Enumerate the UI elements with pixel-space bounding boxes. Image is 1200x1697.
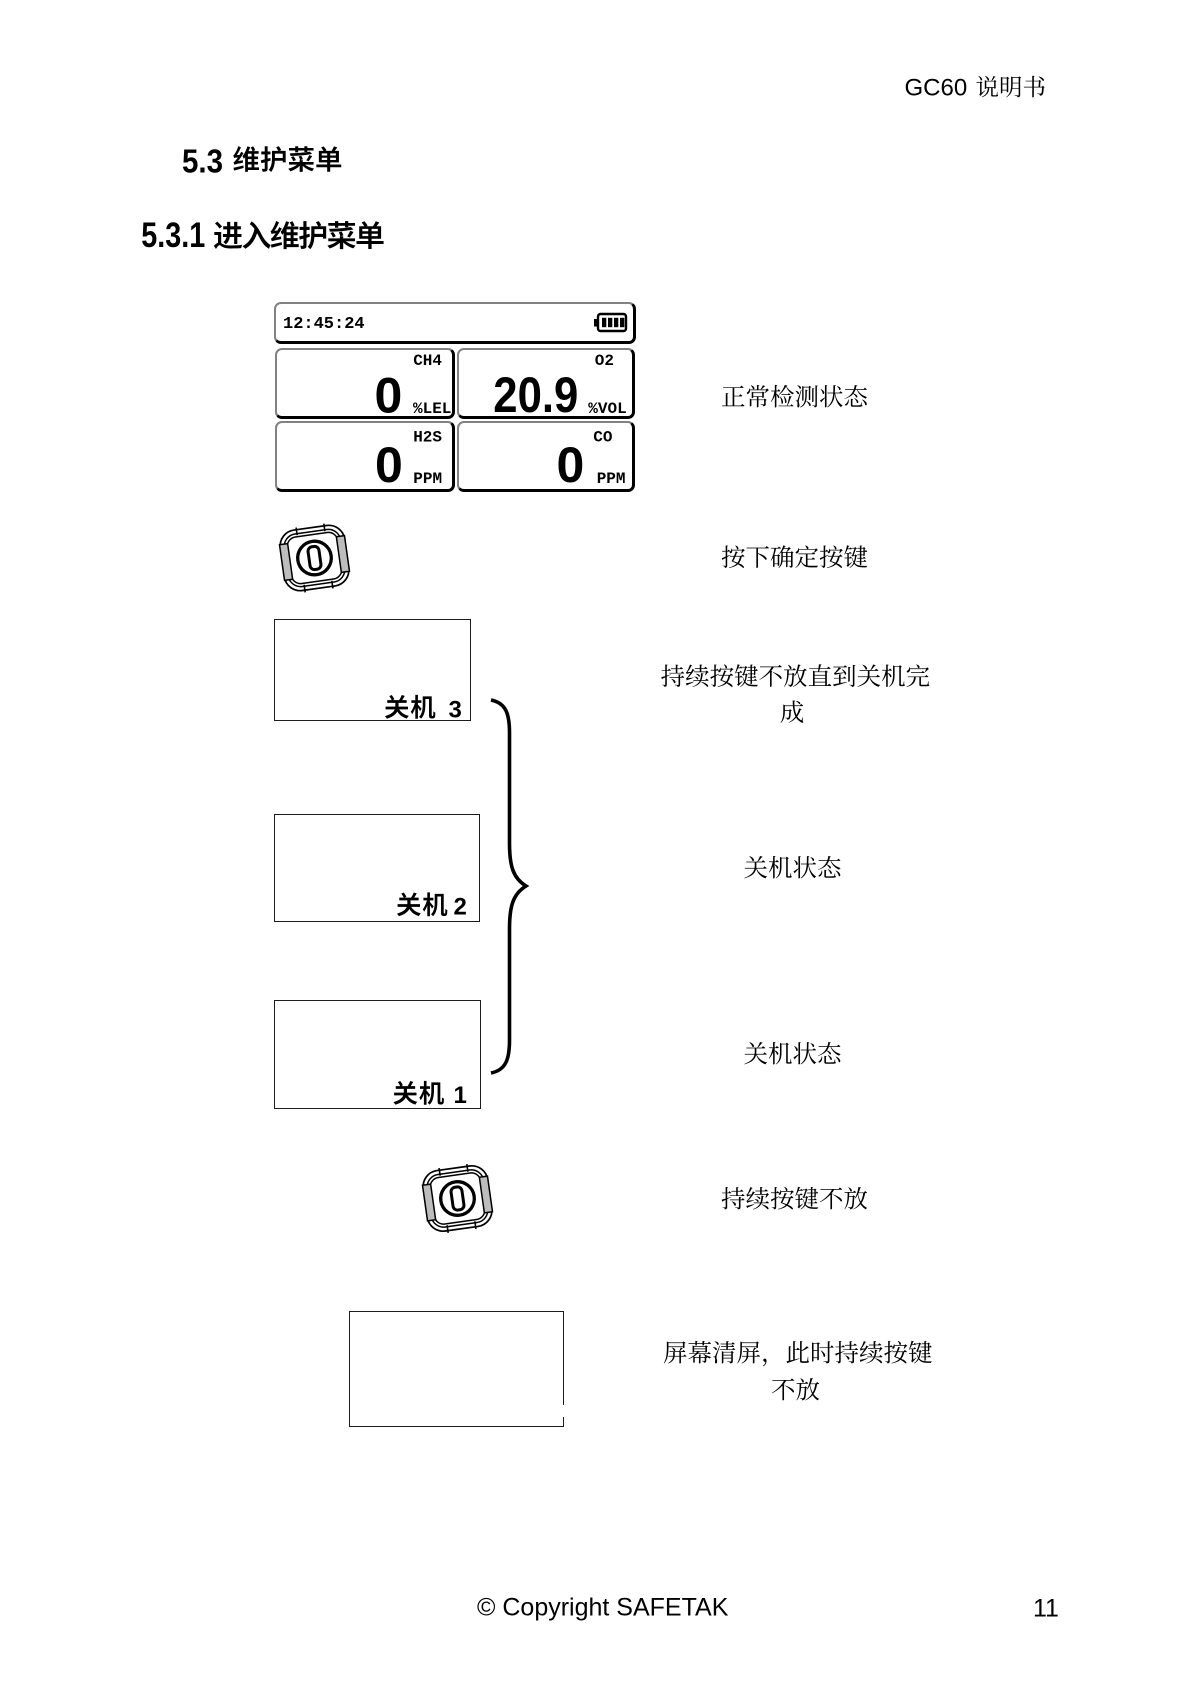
svg-text:PPM: PPM <box>413 470 442 488</box>
svg-text:1: 1 <box>454 1082 467 1109</box>
svg-text:O2: O2 <box>595 352 614 370</box>
svg-text:%LEL: %LEL <box>413 400 451 418</box>
svg-text:3: 3 <box>449 697 462 724</box>
svg-text:%VOL: %VOL <box>588 400 626 418</box>
svg-text:PPM: PPM <box>597 470 626 488</box>
svg-text:CO: CO <box>593 429 613 447</box>
svg-text:GC60: GC60 <box>905 75 968 102</box>
svg-text:5.3.1: 5.3.1 <box>141 216 205 255</box>
svg-text:CH4: CH4 <box>413 352 442 370</box>
svg-text:0: 0 <box>375 368 403 424</box>
svg-text:2: 2 <box>454 894 467 921</box>
svg-text:0: 0 <box>557 437 585 493</box>
svg-text:12:45:24: 12:45:24 <box>283 315 365 334</box>
svg-text:0: 0 <box>375 437 403 493</box>
svg-text:5.3: 5.3 <box>182 143 223 180</box>
svg-text:© Copyright SAFETAK: © Copyright SAFETAK <box>477 1594 729 1622</box>
svg-text:H2S: H2S <box>413 429 442 447</box>
svg-text:20.9: 20.9 <box>493 367 578 423</box>
svg-text:11: 11 <box>1033 1595 1059 1623</box>
